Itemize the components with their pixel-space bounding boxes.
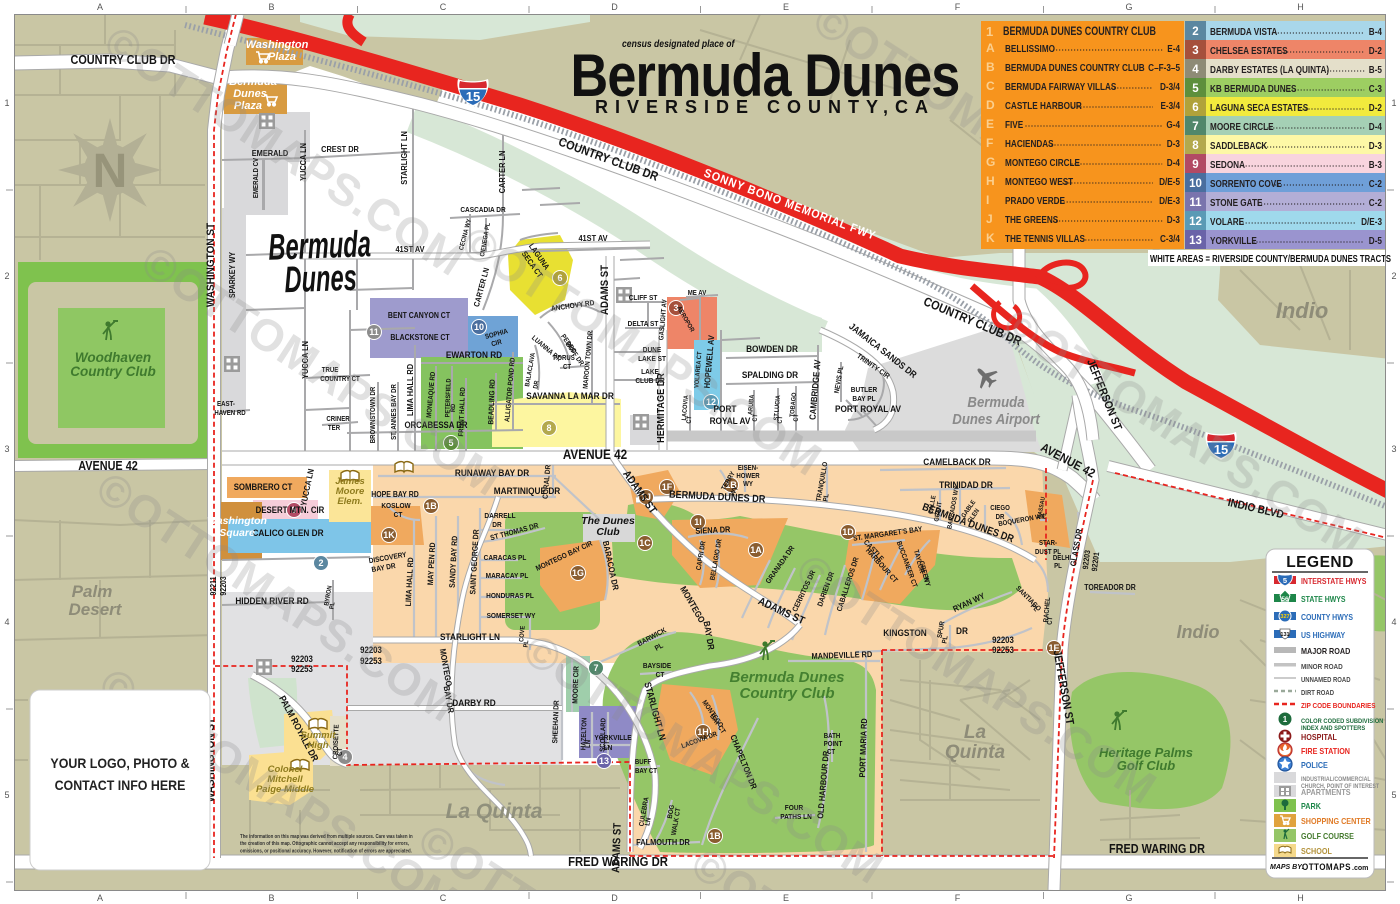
svg-text:H: H [1297,893,1304,903]
svg-text:D-2: D-2 [1369,44,1382,56]
svg-text:92253: 92253 [992,644,1014,655]
svg-text:LN: LN [644,817,653,827]
svg-text:MAPS BY:: MAPS BY: [1270,864,1304,871]
svg-text:PORUS: PORUS [553,355,575,362]
svg-text:CASCADIA DR: CASCADIA DR [460,207,505,214]
svg-text:E: E [986,117,994,131]
svg-text:5: 5 [1192,83,1199,95]
svg-text:Woodhaven: Woodhaven [75,350,151,365]
svg-text:High: High [307,740,328,751]
svg-text:H: H [1297,2,1304,12]
svg-text:BOWDEN DR: BOWDEN DR [746,343,798,354]
svg-text:SHEEHAN DR: SHEEHAN DR [552,700,561,743]
svg-text:CAMELBACK DR: CAMELBACK DR [923,456,991,467]
svg-text:INTERSTATE HWYS: INTERSTATE HWYS [1301,576,1366,586]
svg-text:BLACKSTONE CT: BLACKSTONE CT [390,333,450,343]
svg-text:STARLIGHT LN: STARLIGHT LN [400,131,410,185]
svg-text:B-5: B-5 [1369,63,1382,75]
svg-text:11: 11 [1189,197,1202,209]
svg-text:D/E-5: D/E-5 [1159,175,1180,187]
svg-text:US HIGHWAY: US HIGHWAY [1301,630,1345,640]
svg-text:.com: .com [1352,865,1368,872]
svg-text:YOUR LOGO, PHOTO &: YOUR LOGO, PHOTO & [50,756,189,772]
svg-text:HOWER: HOWER [736,473,760,480]
svg-text:D-2: D-2 [1369,101,1382,113]
svg-text:LAGUNA SECA ESTATES: LAGUNA SECA ESTATES [1210,101,1308,113]
svg-text:DR: DR [492,522,501,529]
svg-text:DARRELL: DARRELL [484,513,516,520]
svg-text:A: A [97,893,103,903]
svg-text:15: 15 [466,89,480,104]
svg-text:OTTOMAPS: OTTOMAPS [1302,861,1351,872]
svg-text:1: 1 [1391,98,1396,108]
svg-text:F: F [955,2,961,12]
svg-text:HOPE BAY RD: HOPE BAY RD [371,490,419,500]
svg-text:CT: CT [827,749,835,756]
svg-text:5: 5 [4,790,9,800]
svg-text:3: 3 [1391,444,1396,454]
svg-text:8: 8 [1192,140,1199,152]
svg-text:SOMERSET WY: SOMERSET WY [487,613,536,620]
svg-text:C-3: C-3 [1369,82,1382,94]
svg-text:1C: 1C [639,538,651,548]
svg-text:La: La [964,722,987,743]
svg-text:C-2: C-2 [1369,177,1382,189]
svg-text:THE GREENS: THE GREENS [1005,213,1058,225]
svg-text:BERMUDA VISTA: BERMUDA VISTA [1210,25,1277,37]
svg-text:1: 1 [986,24,993,39]
svg-text:MARACAY PL: MARACAY PL [486,573,529,580]
svg-text:EWARTON RD: EWARTON RD [446,349,503,360]
svg-text:BELLISSIMO: BELLISSIMO [1005,42,1055,54]
svg-text:PORT ROYAL AV: PORT ROYAL AV [835,403,901,414]
svg-text:I: I [986,193,989,207]
svg-text:CHELSEA ESTATES: CHELSEA ESTATES [1210,44,1288,56]
svg-text:LN: LN [604,745,613,752]
svg-text:EAST-: EAST- [217,401,235,408]
svg-text:PL: PL [822,493,831,502]
svg-text:K: K [986,231,995,245]
svg-text:BERMUDA DUNES COUNTRY CLUB: BERMUDA DUNES COUNTRY CLUB [1003,26,1156,38]
svg-text:D/E-3: D/E-3 [1361,215,1382,227]
svg-text:TOREADOR DR: TOREADOR DR [1084,583,1136,593]
svg-text:RD: RD [450,403,458,412]
svg-text:SCHOOL: SCHOOL [1301,846,1332,856]
svg-text:TRINIDAD DR: TRINIDAD DR [939,479,993,490]
svg-text:Palm: Palm [72,582,113,601]
svg-text:POINT: POINT [824,741,843,748]
svg-text:D-5: D-5 [1369,234,1382,246]
svg-text:F: F [955,893,961,903]
svg-text:6: 6 [1192,102,1198,114]
svg-text:ADAMS ST: ADAMS ST [611,822,624,873]
svg-text:HAVEN RD: HAVEN RD [214,410,246,417]
svg-text:MAJOR ROAD: MAJOR ROAD [1301,646,1351,656]
svg-text:BAY CT: BAY CT [635,768,657,775]
svg-text:G: G [1125,893,1132,903]
svg-text:La Quinta: La Quinta [446,800,543,823]
svg-text:C: C [440,893,447,903]
svg-text:Bermuda: Bermuda [229,76,277,88]
svg-text:CASTLE HARBOUR: CASTLE HARBOUR [1005,99,1082,111]
svg-text:327: 327 [1280,614,1289,620]
svg-text:MONTEGO CIRCLE: MONTEGO CIRCLE [1005,156,1080,168]
svg-text:B: B [268,2,274,12]
svg-text:omissions, or positional accur: omissions, or positional accuracy. Howev… [240,848,412,854]
svg-text:3: 3 [4,444,9,454]
svg-text:TER: TER [328,425,340,432]
svg-text:D-4: D-4 [1369,120,1383,132]
svg-text:the creation of this map. Otto: the creation of this map. Ottographic ca… [240,841,410,847]
svg-text:CT: CT [394,512,403,519]
svg-text:A: A [97,2,103,12]
svg-text:7: 7 [1192,121,1198,133]
svg-text:SADDLEBACK: SADDLEBACK [1210,139,1267,151]
svg-text:YORKVILLE: YORKVILLE [1210,234,1257,246]
svg-text:HACIENDAS: HACIENDAS [1005,137,1054,149]
svg-text:13: 13 [1189,235,1202,247]
svg-text:MONTEGO WEST: MONTEGO WEST [1005,175,1073,187]
svg-text:2: 2 [4,271,9,281]
svg-text:N: N [93,145,128,198]
svg-text:POLICE: POLICE [1301,760,1328,770]
svg-text:B-3: B-3 [1369,158,1382,170]
svg-text:B-4: B-4 [1369,25,1383,37]
svg-text:GOLF COURSE: GOLF COURSE [1301,831,1354,841]
svg-text:SHOPPING CENTER: SHOPPING CENTER [1301,816,1371,826]
svg-text:CONTACT INFO HERE: CONTACT INFO HERE [55,778,186,794]
svg-text:BAY PL: BAY PL [852,396,876,403]
svg-text:Plaza: Plaza [268,51,296,63]
svg-text:G-4: G-4 [1166,118,1180,130]
svg-text:WY: WY [743,481,753,488]
svg-text:3: 3 [1192,45,1198,57]
svg-text:RIVERSIDE COUNTY,CA: RIVERSIDE COUNTY,CA [595,97,935,117]
svg-text:F: F [986,136,993,150]
svg-text:APARTMENTS: APARTMENTS [1301,787,1351,797]
svg-text:BEADLING RD: BEADLING RD [488,379,497,424]
svg-text:1G: 1G [572,568,584,578]
svg-text:41ST AV: 41ST AV [578,234,608,244]
svg-text:Indio: Indio [1276,298,1329,323]
svg-text:10: 10 [1189,178,1202,190]
svg-text:STAR-: STAR- [1039,540,1057,547]
svg-text:MINOR ROAD: MINOR ROAD [1301,664,1343,672]
svg-text:CARACAS PL: CARACAS PL [484,555,527,562]
svg-text:13: 13 [599,756,609,766]
svg-text:4: 4 [1192,64,1199,76]
svg-text:E: E [783,893,789,903]
svg-text:D/E-3: D/E-3 [1159,194,1180,206]
svg-text:D-4: D-4 [1167,156,1181,168]
svg-text:8: 8 [546,423,551,433]
svg-text:Country Club: Country Club [740,685,835,702]
svg-text:STONE GATE: STONE GATE [1210,196,1262,208]
svg-text:5: 5 [1391,790,1396,800]
svg-text:CLIFF ST: CLIFF ST [629,295,658,302]
svg-text:CT: CT [656,672,665,679]
svg-text:G: G [1125,2,1132,12]
svg-text:E-3/4: E-3/4 [1160,99,1180,111]
svg-text:C: C [986,79,995,93]
svg-text:VOLARE: VOLARE [1210,215,1244,227]
svg-text:KB BERMUDA DUNES: KB BERMUDA DUNES [1210,82,1297,94]
svg-text:CT: CT [337,748,345,756]
svg-text:Elem.: Elem. [337,496,362,507]
svg-text:2: 2 [1192,26,1198,38]
svg-text:The information on this map wa: The information on this map was derived … [240,834,413,840]
svg-text:Washington: Washington [207,515,267,527]
svg-text:D-3: D-3 [1167,213,1180,225]
svg-text:BATH: BATH [824,733,841,740]
svg-text:4: 4 [1391,617,1396,627]
svg-text:CT: CT [563,364,571,371]
svg-text:12: 12 [1189,216,1202,228]
svg-text:Desert: Desert [69,600,123,619]
svg-text:DESERT MTN. CIR: DESERT MTN. CIR [256,504,325,515]
svg-text:DIRT ROAD: DIRT ROAD [1301,690,1334,698]
svg-text:CT: CT [685,416,693,424]
svg-text:STARLIGHT LN: STARLIGHT LN [440,631,500,642]
svg-text:C: C [440,2,447,12]
svg-text:EISEN-: EISEN- [738,465,758,472]
svg-text:DR: DR [956,625,968,636]
svg-text:CARTER LN: CARTER LN [498,150,508,193]
svg-text:5: 5 [1283,576,1287,585]
svg-text:PARK: PARK [1301,801,1321,811]
svg-text:SORRENTO COVE: SORRENTO COVE [1210,177,1282,189]
svg-text:C-3/4: C-3/4 [1160,232,1181,244]
svg-text:HONDURAS PL: HONDURAS PL [486,593,534,600]
svg-text:ME AV: ME AV [688,290,707,297]
svg-text:HOSPITAL: HOSPITAL [1301,732,1337,742]
svg-text:92253: 92253 [291,663,313,674]
svg-text:D: D [611,2,618,12]
svg-text:Club: Club [596,526,620,538]
svg-text:WHITE AREAS = RIVERSIDE COUNTY: WHITE AREAS = RIVERSIDE COUNTY/BERMUDA D… [1150,253,1391,264]
svg-text:STATE HWYS: STATE HWYS [1301,594,1346,604]
svg-text:2: 2 [318,558,323,568]
svg-text:4: 4 [4,617,9,627]
svg-text:Washington: Washington [246,39,309,51]
svg-text:1B: 1B [425,501,437,511]
svg-text:AVENUE 42: AVENUE 42 [563,447,627,462]
svg-text:CIEGO: CIEGO [990,505,1010,512]
svg-text:C-2: C-2 [1369,196,1382,208]
svg-text:DARBY ESTATES (LA QUINTA): DARBY ESTATES (LA QUINTA) [1210,63,1329,75]
svg-text:CALICO GLEN DR: CALICO GLEN DR [252,527,324,538]
svg-text:Indio: Indio [1177,622,1220,642]
svg-text:BERMUDA DUNES COUNTRY CLUB: BERMUDA DUNES COUNTRY CLUB [1005,61,1145,73]
svg-text:E: E [783,2,789,12]
svg-text:KOSLOW: KOSLOW [381,503,411,510]
svg-text:H: H [986,174,995,188]
svg-text:INDEX AND SPOTTERS: INDEX AND SPOTTERS [1301,725,1365,733]
svg-text:11: 11 [369,327,379,337]
svg-text:Country Club: Country Club [70,364,156,379]
svg-text:SEDONA: SEDONA [1210,158,1245,170]
svg-text:INDUSTRIAL/COMMERCIAL: INDUSTRIAL/COMMERCIAL [1301,777,1371,783]
svg-text:UNNAMED ROAD: UNNAMED ROAD [1301,677,1351,685]
svg-text:Dunes Airport: Dunes Airport [952,410,1041,427]
svg-text:J: J [986,212,993,226]
svg-text:SIENA DR: SIENA DR [695,525,731,536]
svg-text:FIVE: FIVE [1005,118,1023,130]
svg-text:SOMBRERO CT: SOMBRERO CT [234,481,293,492]
svg-text:D-3: D-3 [1369,139,1382,151]
svg-text:Bermuda Dunes: Bermuda Dunes [729,669,844,686]
svg-text:LN: LN [585,740,593,749]
svg-text:SAVANNA LA MAR DR: SAVANNA LA MAR DR [526,390,614,401]
svg-text:BUTLER: BUTLER [851,387,877,394]
svg-text:Bermuda: Bermuda [967,393,1024,410]
svg-text:BERMUDA FAIRWAY VILLAS: BERMUDA FAIRWAY VILLAS [1005,80,1116,92]
svg-text:E-4: E-4 [1167,42,1180,54]
svg-text:B: B [986,60,995,74]
svg-text:D: D [611,893,618,903]
svg-text:PRADO VERDE: PRADO VERDE [1005,194,1065,206]
svg-text:D-3: D-3 [1167,137,1180,149]
svg-text:C–F-3–5: C–F-3–5 [1148,61,1180,73]
svg-text:THE TENNIS VILLAS: THE TENNIS VILLAS [1005,232,1085,244]
svg-text:1K: 1K [383,530,395,540]
svg-text:1A: 1A [750,545,762,555]
svg-text:COUNTY HWYS: COUNTY HWYS [1301,612,1353,622]
svg-text:COVE: COVE [518,626,527,643]
svg-text:BAYSIDE: BAYSIDE [643,663,672,670]
svg-text:G: G [986,155,995,169]
svg-text:56: 56 [1281,596,1289,603]
svg-text:D: D [986,98,995,112]
svg-text:1: 1 [4,98,9,108]
svg-text:CT: CT [1046,616,1054,625]
svg-text:PL: PL [1054,563,1062,570]
svg-text:Quinta: Quinta [945,742,1006,763]
svg-text:1: 1 [1283,715,1288,724]
svg-text:FIRE STATION: FIRE STATION [1301,746,1350,756]
svg-text:FALMOUTH DR: FALMOUTH DR [636,838,690,848]
svg-text:BUFF: BUFF [635,759,651,766]
svg-text:131: 131 [1280,632,1289,638]
svg-text:B: B [268,893,274,903]
svg-text:2: 2 [1391,271,1396,281]
svg-text:SPALDING DR: SPALDING DR [742,369,799,380]
svg-text:MOORE CIRCLE: MOORE CIRCLE [1210,120,1274,132]
svg-text:LEGEND: LEGEND [1286,554,1354,571]
svg-text:FRED WARING DR: FRED WARING DR [1109,842,1205,856]
svg-text:Dunes: Dunes [284,256,358,300]
svg-text:A: A [986,41,995,55]
svg-text:ZIP CODE BOUNDARIES: ZIP CODE BOUNDARIES [1301,703,1376,711]
svg-text:D-3/4: D-3/4 [1160,80,1181,92]
svg-text:10: 10 [474,322,484,332]
svg-text:MARTINIQUE DR: MARTINIQUE DR [494,485,561,496]
svg-text:9: 9 [1192,159,1198,171]
svg-text:BENT CANYON CT: BENT CANYON CT [388,311,451,321]
